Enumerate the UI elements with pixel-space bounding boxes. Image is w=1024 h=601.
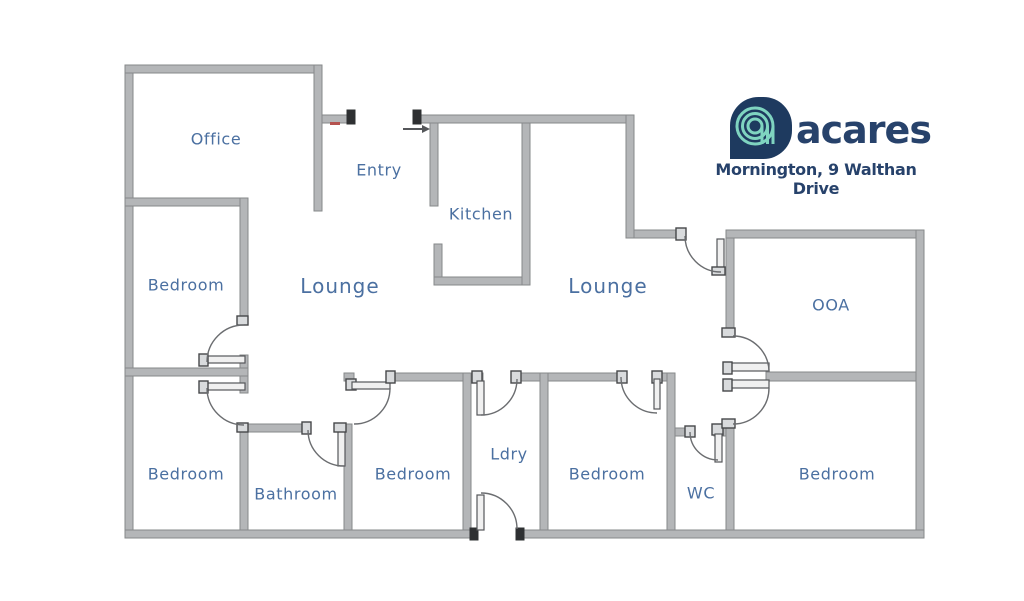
door-wc	[685, 424, 723, 462]
door-ooa	[722, 328, 769, 374]
door-hallway	[676, 228, 725, 275]
room-label-office: Office	[191, 130, 242, 149]
acares-logo-icon	[730, 97, 792, 159]
door-laundry-top	[472, 371, 521, 415]
room-label-kitchen: Kitchen	[449, 205, 513, 224]
room-label-ooa: OOA	[812, 296, 850, 315]
door-bedroom-5	[722, 379, 769, 428]
door-bedroom-4	[617, 371, 662, 413]
door-bedroom-3	[346, 371, 395, 424]
room-label-laundry: Ldry	[490, 445, 528, 464]
brand-name: acares	[796, 106, 931, 154]
door-bedroom-1	[199, 316, 248, 366]
floorplan-drawing	[0, 0, 1024, 601]
room-label-bedroom-5: Bedroom	[799, 465, 876, 484]
room-label-wc: WC	[687, 484, 715, 503]
room-label-bedroom-3: Bedroom	[375, 465, 452, 484]
room-label-bathroom: Bathroom	[254, 485, 337, 504]
door-laundry-exterior	[470, 493, 524, 540]
door-bathroom	[302, 422, 346, 466]
room-label-bedroom-2: Bedroom	[148, 465, 225, 484]
room-label-bedroom-4: Bedroom	[569, 465, 646, 484]
room-label-bedroom-1: Bedroom	[148, 276, 225, 295]
room-label-entry: Entry	[356, 161, 402, 180]
floorplan-page: OfficeEntryKitchenLoungeLoungeBedroomOOA…	[0, 0, 1024, 601]
property-address: Mornington, 9 Walthan Drive	[700, 160, 932, 198]
room-label-lounge-1: Lounge	[300, 274, 379, 298]
entry-arrow	[403, 125, 430, 133]
door-symbols	[199, 110, 769, 540]
room-label-lounge-2: Lounge	[568, 274, 647, 298]
door-marker	[330, 122, 340, 125]
logo-a-glyph	[730, 97, 792, 159]
door-bedroom-2	[199, 381, 248, 432]
